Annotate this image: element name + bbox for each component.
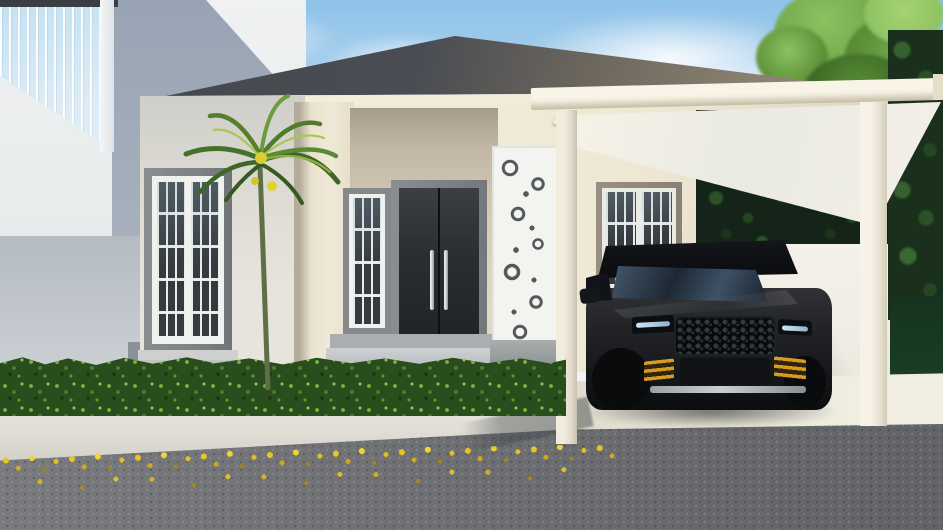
- palm-tree: [176, 86, 348, 398]
- door-center-gap: [438, 188, 440, 348]
- carved-ornament-panel: [492, 146, 560, 360]
- suv-bumper-mesh: [680, 358, 770, 382]
- window-mullion-pillar: [100, 0, 114, 152]
- suv-amber-vent-right: [774, 356, 806, 379]
- suv-wheel-left: [592, 348, 650, 410]
- suv-side-mirror: [579, 287, 601, 305]
- door-handle: [430, 250, 434, 310]
- carport-post-right: [860, 102, 887, 426]
- led-strip: [782, 325, 808, 331]
- black-suv: [586, 238, 832, 414]
- window-glass: [353, 198, 381, 324]
- led-strip: [636, 321, 670, 328]
- carport-beam-cap: [933, 74, 943, 100]
- suv-grille: [676, 318, 774, 354]
- palm-trunk: [260, 166, 268, 390]
- entry-step-top: [330, 334, 508, 348]
- rendered-scene: [0, 0, 943, 530]
- door-handle: [444, 250, 448, 310]
- suv-amber-vent-left: [644, 358, 674, 381]
- palm-fronds: [176, 86, 348, 398]
- suv-headlight-left: [632, 315, 674, 334]
- suv-headlight-right: [778, 319, 812, 336]
- suv-skid-plate: [650, 386, 806, 393]
